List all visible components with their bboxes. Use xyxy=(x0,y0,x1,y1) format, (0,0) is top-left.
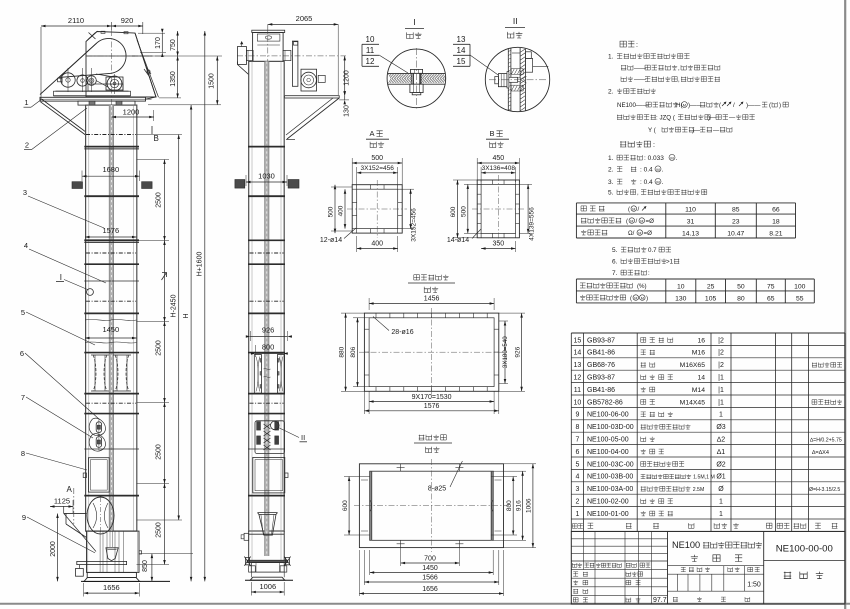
svg-text:110: 110 xyxy=(685,207,696,214)
svg-text:NE100-00-00: NE100-00-00 xyxy=(776,544,833,555)
svg-text::: : xyxy=(636,42,638,49)
svg-text:): ) xyxy=(646,295,648,302)
svg-text:25: 25 xyxy=(707,283,715,290)
svg-text:Ø: Ø xyxy=(718,486,724,493)
svg-text:1006: 1006 xyxy=(259,582,276,591)
svg-text:∆=∆X4: ∆=∆X4 xyxy=(812,450,829,456)
svg-text:>1: >1 xyxy=(666,259,674,266)
svg-text:920: 920 xyxy=(121,16,134,25)
svg-text:—: — xyxy=(729,115,736,122)
svg-text:1200: 1200 xyxy=(123,108,140,117)
svg-text:=Ø: =Ø xyxy=(646,218,655,225)
svg-text:GB93-87: GB93-87 xyxy=(587,337,615,344)
svg-text:2.: 2. xyxy=(608,89,614,96)
svg-text:2500: 2500 xyxy=(156,340,163,356)
svg-text:80: 80 xyxy=(737,295,745,302)
svg-text:)—: )— xyxy=(708,115,717,122)
svg-text:NE100-03A-00: NE100-03A-00 xyxy=(587,486,633,493)
svg-text:——: —— xyxy=(634,66,646,72)
svg-text:700: 700 xyxy=(424,556,436,563)
svg-text:55: 55 xyxy=(796,295,804,302)
svg-text:2.: 2. xyxy=(608,167,614,174)
svg-text:1566: 1566 xyxy=(422,575,438,582)
svg-text:|1: |1 xyxy=(718,399,724,406)
svg-text:85: 85 xyxy=(732,207,740,214)
svg-text:: 0.4: : 0.4 xyxy=(640,179,653,186)
svg-text:2: 2 xyxy=(25,141,29,150)
svg-text:880: 880 xyxy=(338,346,345,357)
svg-text:11: 11 xyxy=(366,46,375,55)
svg-text:∆2: ∆2 xyxy=(717,437,725,444)
svg-text:3: 3 xyxy=(575,486,579,493)
svg-text:: 0.033: : 0.033 xyxy=(644,155,664,162)
svg-text:16: 16 xyxy=(697,337,705,344)
svg-text:170: 170 xyxy=(155,37,162,49)
svg-text:NE100——: NE100—— xyxy=(617,102,649,109)
svg-text:NE100-03D-00: NE100-03D-00 xyxy=(587,424,634,431)
svg-text:|1: |1 xyxy=(718,387,724,394)
svg-text:14-ø14: 14-ø14 xyxy=(447,237,469,244)
svg-text:: JZQ (: : JZQ ( xyxy=(656,115,676,122)
svg-text:1.: 1. xyxy=(608,155,614,162)
svg-text:1006: 1006 xyxy=(526,498,533,513)
svg-text:800: 800 xyxy=(262,343,275,352)
svg-text:1680: 1680 xyxy=(102,165,119,174)
svg-text:1450: 1450 xyxy=(422,565,438,572)
svg-text:1350: 1350 xyxy=(170,71,177,87)
svg-text:100: 100 xyxy=(794,283,806,290)
svg-text:II: II xyxy=(513,16,518,26)
svg-text:800: 800 xyxy=(506,500,513,511)
svg-text:400: 400 xyxy=(338,205,345,216)
svg-text:9: 9 xyxy=(22,513,26,522)
svg-text:M14X45: M14X45 xyxy=(680,399,706,406)
svg-text:6: 6 xyxy=(20,349,24,358)
svg-text:∆1: ∆1 xyxy=(717,449,725,456)
svg-text:4: 4 xyxy=(575,474,579,481)
svg-text:NE100-06-00: NE100-06-00 xyxy=(587,412,629,419)
svg-text::: : xyxy=(653,142,655,149)
svg-text:: 0.4: : 0.4 xyxy=(640,167,653,174)
svg-text:5: 5 xyxy=(21,308,25,317)
svg-text:—: — xyxy=(713,127,720,134)
svg-text:H+1600: H+1600 xyxy=(197,252,204,277)
svg-text:NE100-01-00: NE100-01-00 xyxy=(587,511,629,518)
svg-text:7: 7 xyxy=(21,393,25,402)
svg-text:2000: 2000 xyxy=(50,541,57,557)
svg-text:11: 11 xyxy=(574,387,581,394)
svg-text:14: 14 xyxy=(457,46,466,55)
svg-text:28-ø16: 28-ø16 xyxy=(391,329,413,336)
svg-text:500: 500 xyxy=(371,155,383,162)
svg-text:50: 50 xyxy=(737,283,745,290)
svg-text:GB41-86: GB41-86 xyxy=(587,350,615,357)
svg-text:H-2450: H-2450 xyxy=(170,294,177,317)
svg-text:Ø=H-3.15/2.5: Ø=H-3.15/2.5 xyxy=(809,487,840,493)
svg-text:130: 130 xyxy=(675,295,687,302)
svg-text:15: 15 xyxy=(574,337,582,344)
svg-text:8-ø25: 8-ø25 xyxy=(428,486,446,493)
svg-text:Ø3: Ø3 xyxy=(716,424,725,431)
svg-text:∆=H/0.2+5.75: ∆=H/0.2+5.75 xyxy=(810,438,842,444)
svg-text:600: 600 xyxy=(342,500,349,511)
svg-text:.: . xyxy=(662,167,664,174)
svg-text:105: 105 xyxy=(705,295,717,302)
svg-text:1576: 1576 xyxy=(102,226,119,235)
svg-text:3X180=540: 3X180=540 xyxy=(502,336,509,368)
svg-text:350: 350 xyxy=(492,241,504,248)
svg-text:Y (: Y ( xyxy=(648,127,657,134)
svg-text:23: 23 xyxy=(732,218,740,225)
svg-text:926: 926 xyxy=(514,346,521,357)
svg-text:65: 65 xyxy=(767,295,775,302)
svg-text:/: / xyxy=(638,206,640,213)
svg-text:3: 3 xyxy=(23,188,27,197)
svg-text:GB41-86: GB41-86 xyxy=(587,387,615,394)
svg-text:A: A xyxy=(67,485,73,494)
svg-text:(%): (%) xyxy=(637,283,647,290)
svg-text:1: 1 xyxy=(719,412,723,419)
svg-text:2.5M: 2.5M xyxy=(693,487,705,493)
svg-text:75: 75 xyxy=(767,283,775,290)
svg-text:10: 10 xyxy=(366,35,375,44)
svg-text:M: M xyxy=(638,231,641,235)
svg-text:4X139=556: 4X139=556 xyxy=(528,207,535,241)
svg-text:GB5782-86: GB5782-86 xyxy=(587,399,623,406)
svg-text:7: 7 xyxy=(575,437,579,444)
svg-text:9X170=1530: 9X170=1530 xyxy=(412,394,452,401)
svg-text:1200: 1200 xyxy=(343,70,350,86)
svg-text:2500: 2500 xyxy=(156,444,163,460)
svg-text:14.13: 14.13 xyxy=(682,230,699,237)
svg-text:916: 916 xyxy=(515,500,522,511)
svg-text:8.21: 8.21 xyxy=(769,230,782,237)
svg-text:926: 926 xyxy=(262,326,275,335)
svg-text:M: M xyxy=(634,296,637,300)
svg-text:9: 9 xyxy=(575,412,579,419)
svg-text:I: I xyxy=(413,17,415,27)
svg-text:1656: 1656 xyxy=(422,586,438,593)
svg-text:5.: 5. xyxy=(612,247,618,254)
svg-text:Ω/: Ω/ xyxy=(628,230,635,237)
svg-text:15: 15 xyxy=(457,57,466,66)
svg-text:1656: 1656 xyxy=(103,583,120,592)
svg-text:1: 1 xyxy=(24,98,28,107)
svg-text:12: 12 xyxy=(574,375,582,382)
svg-text:1:50: 1:50 xyxy=(747,582,761,589)
svg-text:M: M xyxy=(641,296,644,300)
svg-text:1576: 1576 xyxy=(424,403,440,410)
svg-text:I: I xyxy=(60,273,62,282)
svg-text:1450: 1450 xyxy=(102,325,119,334)
svg-text:1500: 1500 xyxy=(209,73,216,89)
svg-text:2110: 2110 xyxy=(68,16,84,25)
svg-text:5.: 5. xyxy=(608,190,614,197)
svg-text:/: / xyxy=(733,102,735,109)
svg-text:NE100-05-00: NE100-05-00 xyxy=(587,437,629,444)
svg-text:14: 14 xyxy=(697,375,705,382)
svg-text:4: 4 xyxy=(24,241,28,250)
svg-text:B: B xyxy=(154,134,159,143)
svg-text:500: 500 xyxy=(461,206,468,217)
svg-text:130: 130 xyxy=(343,105,350,117)
svg-text:M: M xyxy=(683,102,686,107)
svg-text:): ) xyxy=(779,102,781,109)
svg-text:6: 6 xyxy=(575,449,579,456)
svg-text:M: M xyxy=(630,219,633,223)
svg-text:6.: 6. xyxy=(612,259,618,266)
svg-text:3.: 3. xyxy=(608,179,614,186)
svg-text:500: 500 xyxy=(328,206,335,217)
svg-text:850: 850 xyxy=(142,560,149,572)
svg-text:806: 806 xyxy=(350,346,357,357)
svg-text:1: 1 xyxy=(575,511,579,518)
svg-text:NE100-02-00: NE100-02-00 xyxy=(587,499,629,506)
svg-text:1030: 1030 xyxy=(258,172,275,181)
svg-text:|2: |2 xyxy=(718,337,724,344)
svg-text:0.7: 0.7 xyxy=(648,247,657,254)
svg-text:)——: )—— xyxy=(746,102,761,109)
svg-text:)—: )— xyxy=(692,127,701,134)
svg-text:18: 18 xyxy=(772,218,780,225)
svg-text:NE100-04-00: NE100-04-00 xyxy=(587,449,629,456)
svg-text:=Ø: =Ø xyxy=(644,230,653,237)
svg-text:NE100: NE100 xyxy=(672,540,700,550)
svg-text:Ø1: Ø1 xyxy=(716,474,725,481)
svg-text:|1: |1 xyxy=(718,375,724,382)
svg-text:10.47: 10.47 xyxy=(727,230,744,237)
svg-text:5: 5 xyxy=(575,461,579,468)
svg-text:450: 450 xyxy=(492,155,504,162)
svg-text:97.7: 97.7 xyxy=(653,597,667,604)
svg-text:II: II xyxy=(301,433,305,442)
svg-text:2500: 2500 xyxy=(156,522,163,538)
svg-text:M: M xyxy=(632,207,635,211)
svg-text:——: —— xyxy=(634,78,646,84)
svg-text:NE100-03B-00: NE100-03B-00 xyxy=(587,474,633,481)
svg-text:8: 8 xyxy=(21,449,25,458)
svg-text:/: / xyxy=(636,218,638,225)
svg-text:A: A xyxy=(369,129,374,138)
svg-text:1: 1 xyxy=(719,499,723,506)
svg-text:12: 12 xyxy=(366,57,375,66)
svg-text:13: 13 xyxy=(574,362,582,369)
svg-text:M14: M14 xyxy=(692,387,705,394)
svg-text:B: B xyxy=(489,129,494,138)
svg-text:1.5M,1 M: 1.5M,1 M xyxy=(693,475,715,481)
svg-text:1125: 1125 xyxy=(54,497,70,506)
svg-text:H: H xyxy=(183,313,190,318)
svg-text:.: . xyxy=(676,155,678,162)
svg-text:8: 8 xyxy=(575,424,579,431)
svg-text:M16X65: M16X65 xyxy=(680,362,706,369)
svg-text:3X152=456: 3X152=456 xyxy=(411,208,418,242)
svg-text:1456: 1456 xyxy=(424,296,440,303)
svg-text:1: 1 xyxy=(719,511,723,518)
svg-text:M: M xyxy=(640,219,643,223)
svg-text:2: 2 xyxy=(575,499,579,506)
svg-text:NE100-03C-00: NE100-03C-00 xyxy=(587,461,634,468)
svg-text:2500: 2500 xyxy=(156,192,163,208)
svg-text:10: 10 xyxy=(574,399,582,406)
svg-text:3X136=408: 3X136=408 xyxy=(482,165,516,172)
svg-text:1.: 1. xyxy=(608,54,614,61)
svg-text:7.: 7. xyxy=(612,270,618,277)
svg-text:750: 750 xyxy=(170,39,177,51)
svg-text:GB93-87: GB93-87 xyxy=(587,375,615,382)
svg-text:|2: |2 xyxy=(718,350,724,357)
svg-text:3X152=456: 3X152=456 xyxy=(360,165,394,172)
svg-text:|2: |2 xyxy=(718,362,724,369)
svg-text:M16: M16 xyxy=(692,350,705,357)
svg-text:66: 66 xyxy=(772,207,780,214)
svg-text:.: . xyxy=(662,179,664,186)
svg-text:GB68-76: GB68-76 xyxy=(587,362,615,369)
svg-text:2065: 2065 xyxy=(296,14,313,23)
svg-text:Ø2: Ø2 xyxy=(716,461,725,468)
svg-text:600: 600 xyxy=(450,206,457,217)
svg-text:13: 13 xyxy=(457,35,466,44)
svg-text:400: 400 xyxy=(371,241,383,248)
svg-text:31: 31 xyxy=(687,218,695,225)
svg-text:14: 14 xyxy=(574,350,582,357)
svg-text:12-ø14: 12-ø14 xyxy=(320,237,342,244)
svg-text:10: 10 xyxy=(677,283,685,290)
